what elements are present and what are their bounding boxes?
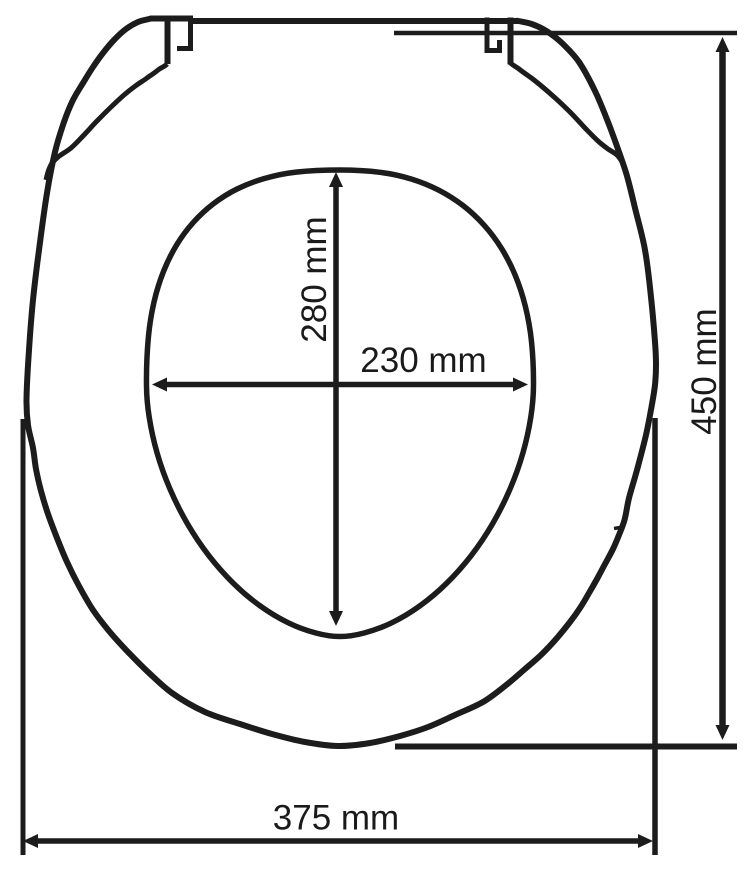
svg-text:280 mm: 280 mm [295, 216, 334, 342]
svg-text:450 mm: 450 mm [685, 308, 724, 434]
svg-text:230 mm: 230 mm [360, 341, 486, 380]
svg-text:375 mm: 375 mm [273, 799, 399, 838]
